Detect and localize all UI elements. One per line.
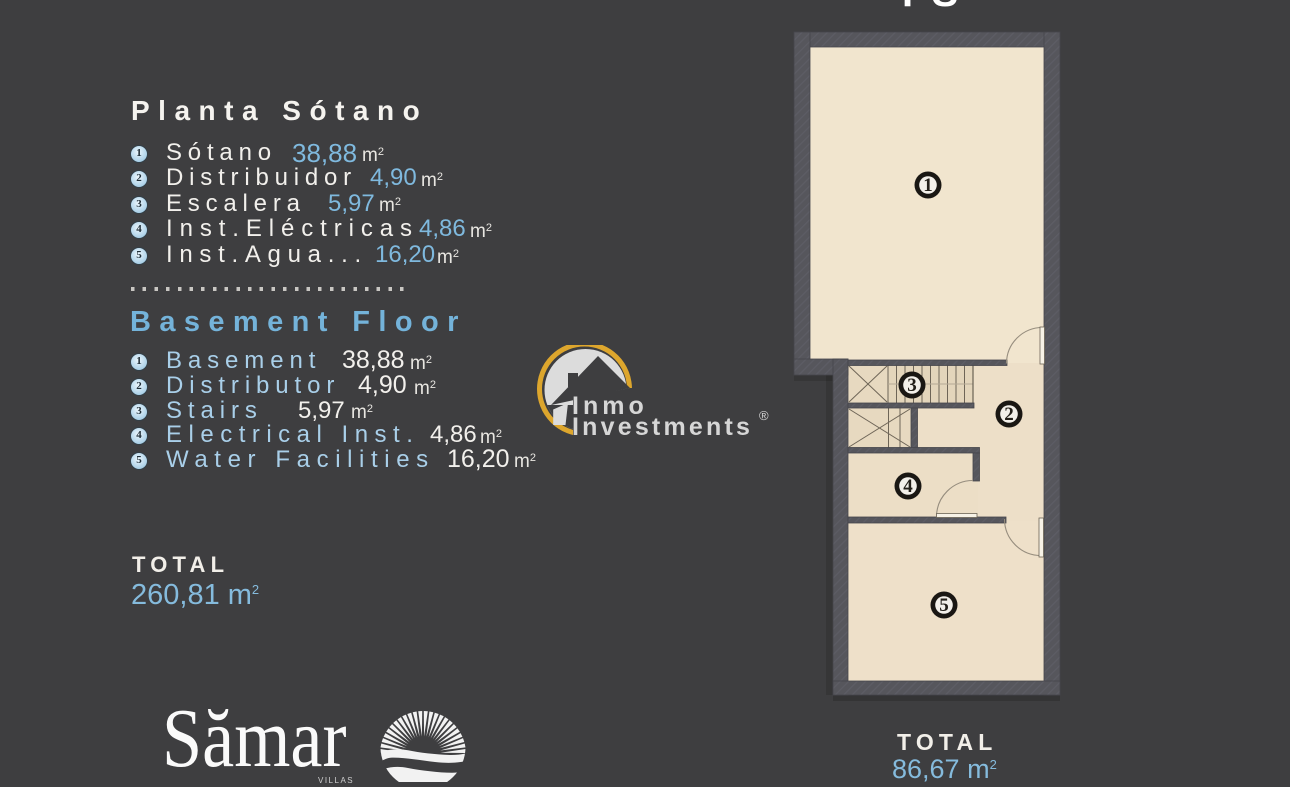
svg-text:2: 2	[1004, 404, 1014, 425]
svg-text:5: 5	[939, 595, 949, 616]
svg-text:3: 3	[907, 375, 917, 396]
svg-text:4: 4	[903, 476, 913, 497]
svg-text:1: 1	[923, 175, 933, 196]
